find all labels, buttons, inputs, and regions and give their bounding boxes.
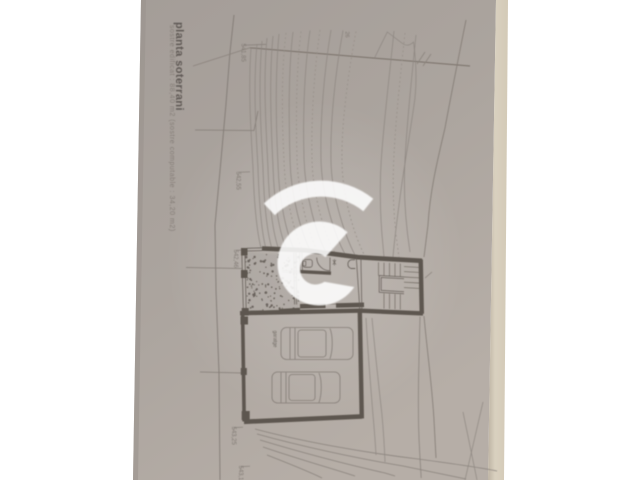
svg-text:543,15: 543,15 [237,466,243,480]
svg-text:542,55: 542,55 [235,172,241,191]
svg-text:541,85: 541,85 [240,44,246,63]
svg-text:garatge: garatge [272,331,278,348]
svg-text:sostre edificat : 88,40 m2 (so: sostre edificat : 88,40 m2 (sostre compu… [168,25,175,232]
svg-text:543,25: 543,25 [230,427,236,446]
svg-text:26: 26 [344,32,350,38]
svg-text:542,46: 542,46 [232,250,238,269]
